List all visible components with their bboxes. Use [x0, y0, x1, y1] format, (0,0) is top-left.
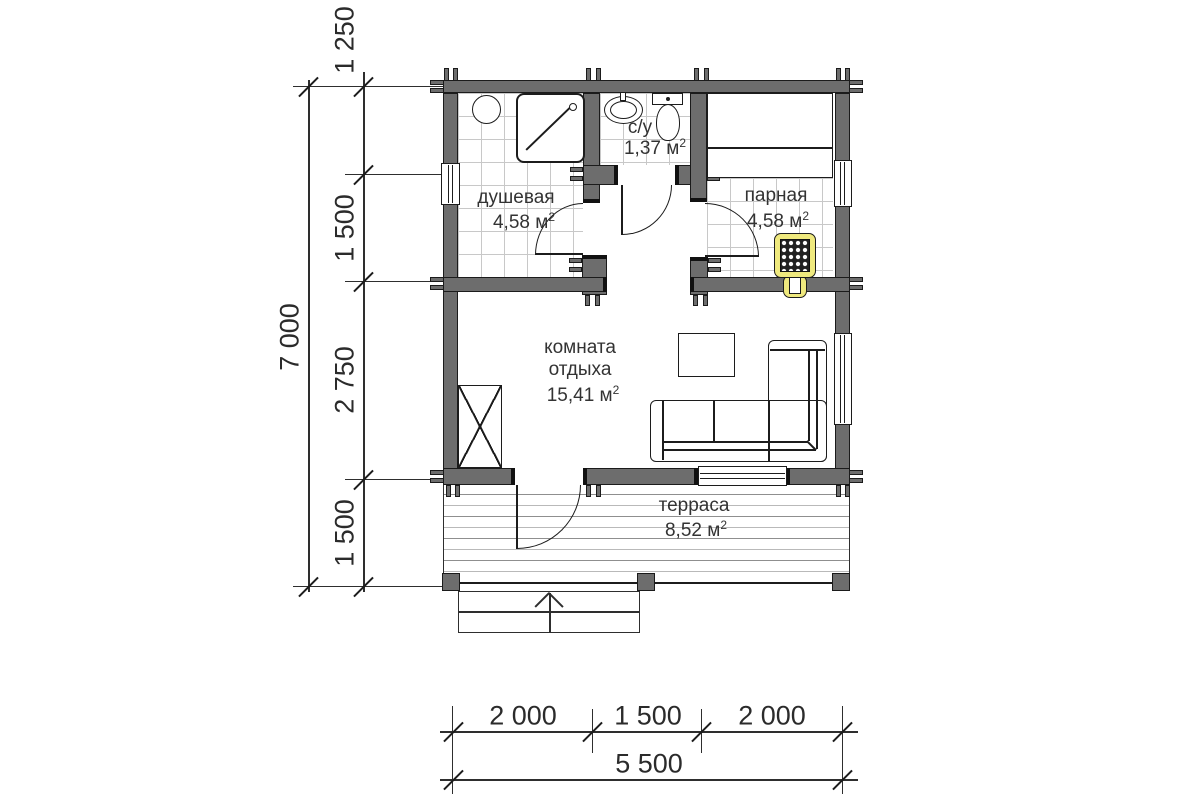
log-end [569, 258, 582, 263]
window-jamb [787, 468, 790, 485]
terrace-edge-right [849, 485, 850, 583]
log-end [444, 68, 449, 81]
log-end [849, 285, 863, 290]
dimension-line-segments-vertical [363, 72, 365, 592]
log-end [849, 80, 863, 85]
sofa-backrest-line [664, 441, 808, 443]
window-glass [700, 478, 785, 479]
window-steam-room [834, 160, 852, 207]
wall-middle-left [443, 277, 607, 292]
door-jamb [690, 257, 708, 261]
door-jamb [582, 255, 607, 259]
log-end [430, 470, 444, 475]
log-end [708, 267, 721, 272]
room-area-shower: 4,58 м2 [493, 210, 555, 234]
dim-left-segment-1: 1 500 [330, 194, 361, 262]
log-end [845, 485, 850, 497]
dim-bottom-segment-1: 1 500 [614, 701, 682, 732]
door-jamb [675, 165, 679, 185]
wall-bottom-middle [583, 468, 698, 485]
log-end [694, 68, 699, 81]
washbasin-round [472, 95, 501, 124]
log-end [570, 167, 583, 172]
log-end [836, 485, 841, 497]
log-end [430, 285, 444, 290]
log-end [849, 470, 863, 475]
sofa-seat-divider [768, 401, 770, 461]
log-end [453, 68, 458, 81]
cabinet [458, 385, 502, 468]
extension-line [345, 174, 443, 175]
table [678, 333, 735, 377]
log-end [596, 485, 601, 497]
stairs-direction-stem [549, 593, 551, 633]
wc-sink-faucet [620, 92, 626, 101]
door-jamb [511, 468, 515, 485]
wall-wc-left [583, 165, 618, 185]
door-jamb [614, 165, 618, 185]
room-label-terrace: терраса [659, 495, 730, 517]
log-end [430, 478, 444, 483]
log-end [836, 68, 841, 81]
wall-top [443, 80, 850, 93]
window-glass [840, 335, 841, 423]
room-label-lounge: комната [544, 337, 616, 359]
extension-line [293, 586, 443, 587]
log-end [595, 295, 600, 306]
door-arc-wc [622, 185, 672, 235]
window-glass [844, 162, 845, 205]
wall-wc-steam [690, 93, 707, 202]
log-end [455, 485, 460, 497]
toilet-button [666, 97, 670, 101]
dim-bottom-segment-0: 2 000 [489, 701, 557, 732]
sofa-seat-divider [713, 401, 715, 442]
dim-left-segment-0: 1 250 [330, 6, 361, 74]
opening-jamb [603, 277, 607, 292]
wall-bottom-left [443, 468, 515, 485]
sofa-backrest-line [816, 351, 818, 449]
room-area-steam: 4,58 м2 [747, 209, 809, 233]
door-leaf-shower [535, 253, 583, 255]
door-jamb [690, 198, 707, 202]
log-end [704, 68, 709, 81]
window-glass [840, 162, 841, 205]
sauna-stove-duct [789, 277, 801, 294]
log-end [430, 277, 444, 282]
log-end [849, 277, 863, 282]
shower-drain-icon [569, 103, 577, 111]
log-end [430, 80, 444, 85]
door-jamb [583, 199, 600, 203]
room-label-lounge-2: отдыха [549, 359, 612, 381]
wall-shower-wc [583, 93, 600, 203]
sauna-bench [707, 93, 833, 178]
log-end [703, 295, 708, 306]
window-terrace [698, 466, 787, 486]
log-end [693, 295, 698, 306]
terrace-post [637, 573, 655, 591]
room-label-shower: душевая [477, 187, 554, 209]
wall-middle-right [690, 277, 850, 292]
log-end [570, 176, 583, 181]
sofa-bottom-section [650, 400, 827, 462]
log-end [585, 295, 590, 306]
room-area-wc: 1,37 м2 [624, 136, 686, 160]
dim-bottom-total: 5 500 [615, 749, 683, 780]
log-end [708, 258, 721, 263]
door-jamb [583, 468, 587, 485]
room-area-terrace: 8,52 м2 [665, 518, 727, 542]
terrace-post [832, 573, 850, 591]
log-end [849, 88, 863, 93]
window-glass [448, 165, 449, 203]
terrace-post [442, 573, 460, 591]
log-end [430, 88, 444, 93]
log-end [569, 267, 582, 272]
wall-bottom-right [787, 468, 850, 485]
sofa-backrest-line [808, 351, 810, 441]
sofa-armrest-left [662, 401, 664, 460]
window-glass [844, 335, 845, 423]
dim-bottom-segment-2: 2 000 [738, 701, 806, 732]
window-shower [441, 163, 460, 205]
floor-plan-canvas: 1 250 1 500 2 750 1 500 7 000 2 000 1 50… [0, 0, 1200, 800]
dimension-line-total-vertical [308, 80, 310, 592]
log-end [586, 485, 591, 497]
sauna-bench-edge [708, 147, 832, 149]
sauna-stove-stones [780, 239, 810, 272]
room-label-steam: парная [745, 185, 808, 207]
extension-line [345, 479, 443, 480]
room-area-lounge: 15,41 м2 [547, 383, 620, 407]
opening-jamb [690, 277, 694, 292]
terrace-edge-left [443, 485, 444, 583]
sofa-backrest-line [664, 449, 816, 451]
dim-left-segment-3: 1 500 [330, 499, 361, 567]
window-glass [700, 473, 785, 474]
extension-line [293, 86, 443, 87]
dim-left-total: 7 000 [275, 303, 306, 371]
window-lounge [834, 333, 852, 425]
extension-line [345, 281, 443, 282]
log-end [596, 68, 601, 81]
log-end [446, 485, 451, 497]
terrace-deck [444, 494, 849, 583]
window-glass [452, 165, 453, 203]
door-leaf-steam-room [705, 255, 759, 257]
door-leaf-terrace [516, 485, 518, 549]
dim-left-segment-2: 2 750 [330, 346, 361, 414]
log-end [586, 68, 591, 81]
log-end [849, 478, 863, 483]
door-leaf-wc [621, 185, 623, 235]
